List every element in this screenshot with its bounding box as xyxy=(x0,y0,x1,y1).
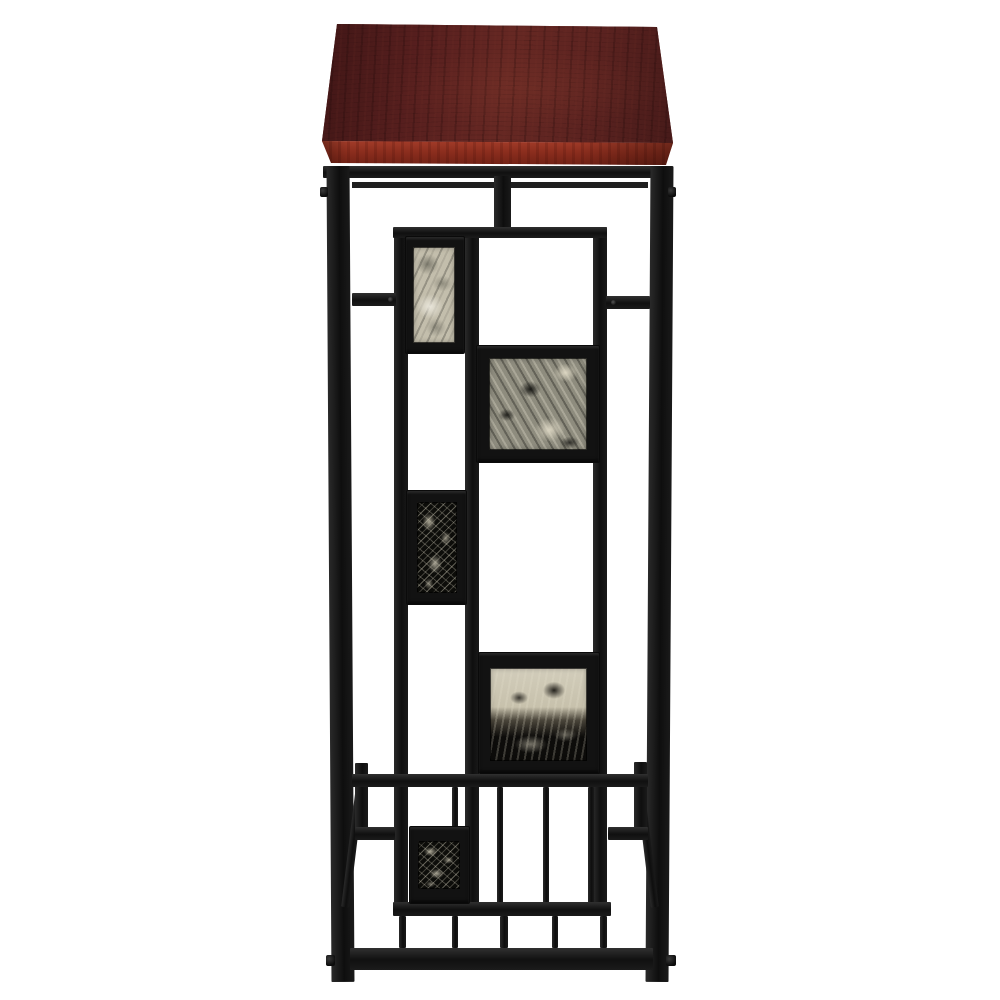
under-slat-1 xyxy=(399,916,406,948)
panel-center-rail xyxy=(465,227,479,916)
under-slat-3 xyxy=(500,916,508,948)
shelf-left-stub xyxy=(355,827,395,840)
marble-tile-3 xyxy=(417,502,457,593)
shelf-right-post xyxy=(634,762,647,828)
right-stub-bolt xyxy=(611,300,616,305)
marble-tile-5 xyxy=(418,841,460,889)
marble-tile-2 xyxy=(489,358,587,450)
left-stub-bolt xyxy=(388,297,393,302)
shelf-slat-2 xyxy=(497,787,503,903)
shelf-slat-3 xyxy=(543,787,549,903)
center-post xyxy=(494,176,511,229)
under-slat-4 xyxy=(552,916,558,948)
marble-tile-4 xyxy=(490,668,587,761)
table-top-front-edge xyxy=(320,139,676,167)
shelf-right-stub xyxy=(608,827,648,840)
shelf-slat-4 xyxy=(588,787,594,903)
product-photo xyxy=(0,0,1000,1000)
table-top-surface xyxy=(320,20,676,145)
top-bolt-right xyxy=(668,187,676,197)
marble-tile-1 xyxy=(413,247,455,343)
panel-right-rail xyxy=(593,227,607,916)
bottom-stretcher xyxy=(350,948,653,970)
bottom-bolt-left xyxy=(326,955,335,966)
shelf-left-post xyxy=(355,763,368,828)
under-slat-2 xyxy=(452,916,458,948)
under-slat-5 xyxy=(600,916,607,948)
shelf-back-rail xyxy=(352,774,648,787)
top-bolt-left xyxy=(320,187,328,197)
bottom-bolt-right xyxy=(666,955,676,966)
panel-bottom-rail xyxy=(393,902,611,916)
